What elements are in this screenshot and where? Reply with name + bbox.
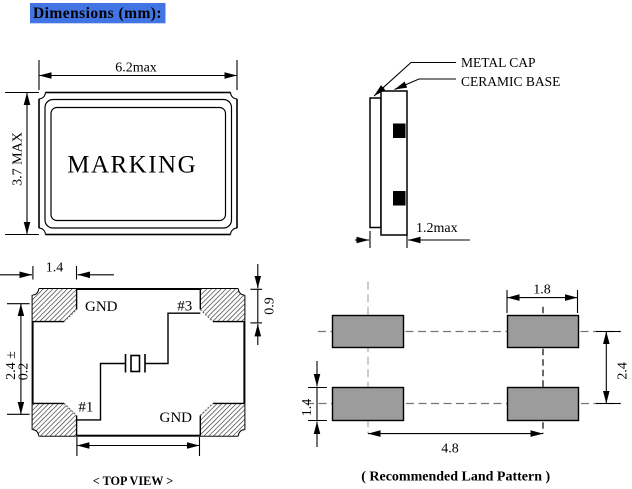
svg-text:3.7 MAX: 3.7 MAX [11,132,26,186]
svg-text:4.8: 4.8 [441,442,459,457]
svg-text:#3: #3 [177,299,192,315]
svg-text:GND: GND [85,299,118,315]
svg-text:1.4: 1.4 [300,399,315,417]
svg-text:0.2: 0.2 [16,363,31,381]
svg-text:2.4: 2.4 [616,362,631,380]
svg-text:0.9: 0.9 [263,297,278,315]
svg-text:< TOP VIEW >: < TOP VIEW > [93,474,173,488]
svg-text:1.8: 1.8 [533,282,551,297]
svg-text:#1: #1 [78,400,93,416]
svg-text:( Recommended Land Pattern ): ( Recommended Land Pattern ) [361,470,550,485]
svg-text:1.4: 1.4 [46,260,64,275]
svg-text:6.2max: 6.2max [115,61,157,76]
svg-text:Dimensions (mm):: Dimensions (mm): [33,5,162,22]
svg-text:METAL CAP: METAL CAP [461,55,536,70]
svg-text:CERAMIC BASE: CERAMIC BASE [461,74,560,89]
svg-text:MARKING: MARKING [67,152,197,179]
svg-text:GND: GND [160,410,193,426]
svg-text:1.2max: 1.2max [416,221,458,236]
